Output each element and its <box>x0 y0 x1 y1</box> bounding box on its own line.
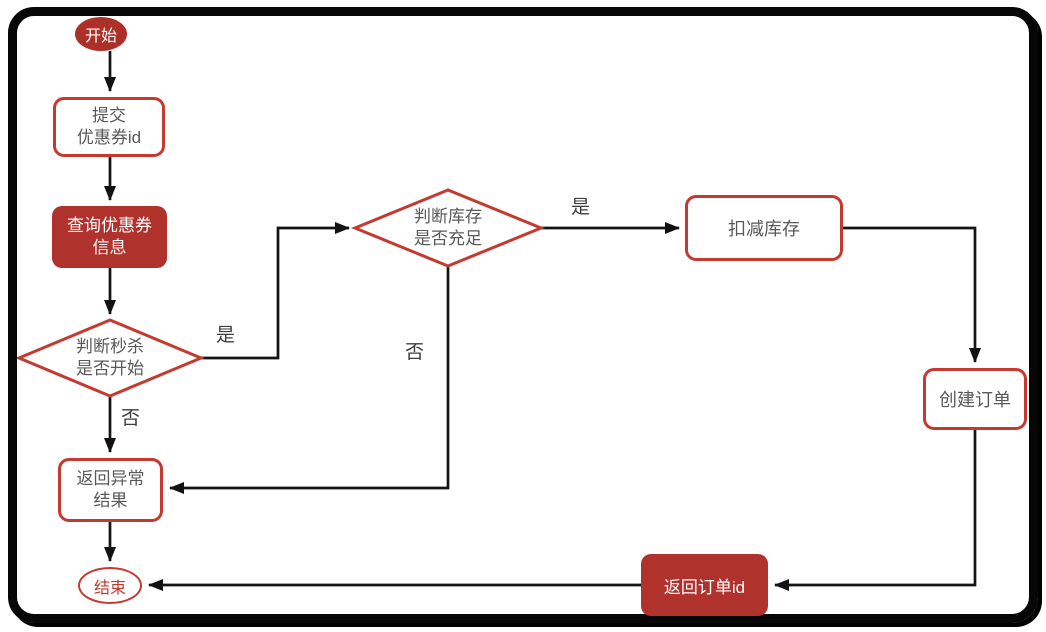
submit-coupon-line1: 提交 <box>77 105 141 127</box>
return-error-label: 返回异常 结果 <box>77 468 145 513</box>
check-seckill-line1: 判断秒杀 <box>76 336 144 358</box>
submit-coupon-node: 提交 优惠券id <box>53 97 165 157</box>
start-node: 开始 <box>75 17 127 51</box>
check-stock-text: 判断库存 是否充足 <box>373 196 523 260</box>
edge-stock-no-to-return-error <box>170 266 448 488</box>
submit-coupon-label: 提交 优惠券id <box>77 105 141 150</box>
deduct-stock-label: 扣减库存 <box>728 215 800 241</box>
check-seckill-line2: 是否开始 <box>76 358 144 380</box>
return-error-line1: 返回异常 <box>77 468 145 490</box>
start-label: 开始 <box>85 22 117 46</box>
query-coupon-line1: 查询优惠券 <box>67 215 152 237</box>
query-coupon-label: 查询优惠券 信息 <box>67 215 152 260</box>
create-order-node: 创建订单 <box>923 368 1027 430</box>
edge-create-order-to-return-order <box>775 430 975 585</box>
check-seckill-text: 判断秒杀 是否开始 <box>35 326 185 390</box>
edge-label-stock-no: 否 <box>405 337 424 364</box>
check-stock-line2: 是否充足 <box>414 228 482 250</box>
edge-deduct-to-create-order <box>843 228 975 362</box>
end-node: 结束 <box>78 567 142 604</box>
submit-coupon-line2: 优惠券id <box>77 127 141 149</box>
flowchart-edges <box>0 0 1046 632</box>
end-label: 结束 <box>94 574 126 598</box>
return-order-id-node: 返回订单id <box>641 554 768 616</box>
edge-label-seckill-yes: 是 <box>216 320 235 347</box>
return-error-node: 返回异常 结果 <box>58 458 163 522</box>
check-stock-line1: 判断库存 <box>414 206 482 228</box>
return-order-id-label: 返回订单id <box>664 573 745 598</box>
return-error-line2: 结果 <box>77 490 145 512</box>
query-coupon-line2: 信息 <box>67 237 152 259</box>
edge-label-seckill-no: 否 <box>121 403 140 430</box>
edge-label-stock-yes: 是 <box>571 192 590 219</box>
create-order-label: 创建订单 <box>939 386 1011 412</box>
deduct-stock-node: 扣减库存 <box>685 195 843 261</box>
query-coupon-node: 查询优惠券 信息 <box>52 206 167 268</box>
